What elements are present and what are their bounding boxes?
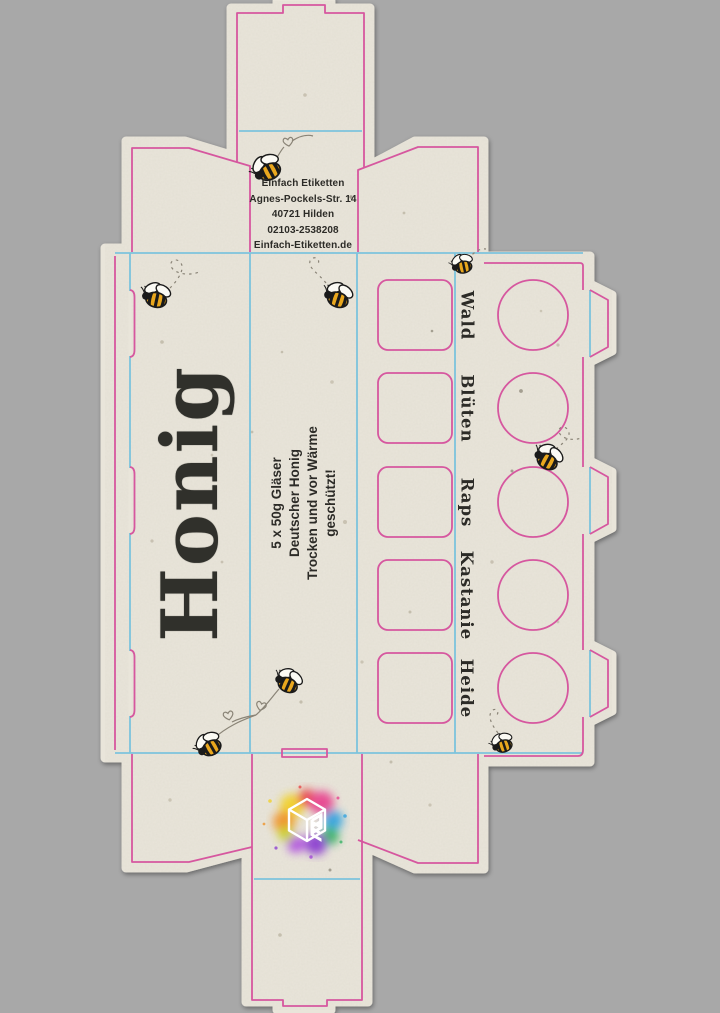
- brand-website: Einfach-Etiketten.de: [238, 238, 368, 254]
- brand-name: Einfach Etiketten: [238, 176, 368, 192]
- variety-label-blueten: Blüten: [437, 368, 497, 448]
- brand-address-block: Einfach Etiketten Agnes-Pockels-Str. 14 …: [238, 176, 368, 254]
- variety-label-raps: Raps: [437, 462, 497, 542]
- product-title: Honig: [145, 365, 236, 642]
- dieline-canvas: Einfach Etiketten Agnes-Pockels-Str. 14 …: [0, 0, 720, 1013]
- variety-label-heide: Heide: [437, 648, 497, 728]
- variety-label-kastanie: Kastanie: [437, 555, 497, 635]
- info-panel: 5 x 50g Gläser Deutscher Honig Trocken u…: [250, 253, 357, 753]
- storage-instructions: 5 x 50g Gläser Deutscher Honig Trocken u…: [268, 426, 340, 580]
- die-cut-artwork: [0, 0, 720, 1013]
- brand-street: Agnes-Pockels-Str. 14: [238, 192, 368, 208]
- brand-city: 40721 Hilden: [238, 207, 368, 223]
- brand-phone: 02103-2538208: [238, 223, 368, 239]
- front-panel: Honig: [130, 253, 250, 753]
- variety-label-wald: Wald: [437, 275, 497, 355]
